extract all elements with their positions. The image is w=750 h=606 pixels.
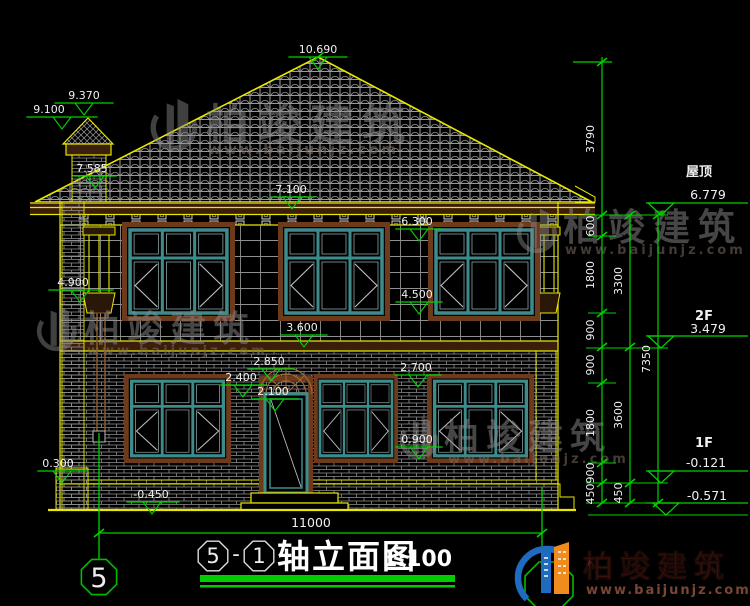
watermark-url: www.baijunjz.com [208, 142, 399, 158]
title-block: 5 - 1 轴立面图 1:100 [198, 537, 455, 588]
title-axis-end: 1 [252, 544, 265, 568]
overall-width-dimension: 11000 [94, 515, 547, 537]
level-value: 3.600 [286, 321, 318, 334]
dim-value: 450 [612, 483, 625, 504]
level-value: 2.700 [400, 361, 432, 374]
level-value: -0.121 [686, 455, 726, 470]
dim-value: 900 [584, 320, 597, 341]
watermark-url: www.baijunjz.com [565, 243, 746, 258]
title-axis-start: 5 [206, 544, 219, 568]
window-2f-left [125, 225, 233, 319]
level-label: 1F [695, 436, 713, 451]
level-value: 4.500 [401, 288, 433, 301]
dim-value: 1800 [584, 261, 597, 289]
level-value: 0.300 [42, 457, 74, 470]
level-value: 9.100 [33, 103, 65, 116]
dim-value: 3300 [612, 267, 625, 295]
level-value: 10.690 [299, 43, 338, 56]
level-value: 4.900 [57, 276, 89, 289]
chain-outer-label: 7350 [640, 345, 653, 373]
brand-logo: 柏竣建筑 www.baijunjz.com [518, 542, 750, 599]
dim-value: 3790 [584, 125, 597, 153]
level-value: 7.100 [275, 183, 307, 196]
level-value: 6.779 [690, 187, 726, 202]
window-1f-middle [316, 376, 396, 461]
level-value: 2.100 [257, 385, 289, 398]
dim-value: 600 [584, 216, 597, 237]
brand-url: www.baijunjz.com [586, 583, 750, 598]
level-value: 2.850 [253, 355, 285, 368]
chain-level-connectors [586, 215, 748, 515]
level-2f: 2F 3.479 [646, 309, 748, 348]
title-axis-separator: - [232, 542, 240, 566]
level-value: 9.370 [68, 89, 100, 102]
dim-value: 900 [584, 355, 597, 376]
level-value: 7.585 [76, 162, 108, 175]
dim-value: 450 [584, 484, 597, 505]
watermark-url: www.baijunjz.com [87, 344, 268, 359]
axis-number: 5 [90, 563, 107, 594]
chimney-cap-pyramid [63, 118, 113, 144]
title-underline-thick [200, 575, 455, 582]
elevation-drawing: 柏竣建筑 www.baijunjz.com 柏竣建筑 www.baijunjz.… [0, 0, 750, 606]
eave-fascia [30, 202, 595, 215]
dim-value: 11000 [291, 515, 331, 530]
drawing-scale: 1:100 [382, 547, 452, 572]
level-ground-right: -0.571 [646, 488, 748, 515]
dim-value: 1800 [584, 409, 597, 437]
level-value: -0.571 [687, 488, 727, 503]
level-value: -0.450 [133, 488, 168, 501]
window-1f-left [126, 376, 228, 461]
level-value: 2.400 [225, 371, 257, 384]
dim-value: 900 [584, 463, 597, 484]
level-value: 0.900 [401, 433, 433, 446]
brand-name: 柏竣建筑 [583, 550, 731, 585]
level-1f: 1F -0.121 [646, 436, 748, 483]
chimney-cap-band [66, 144, 111, 155]
level-value: 6.300 [401, 215, 433, 228]
pier-base [56, 468, 88, 510]
title-underline-thin [200, 585, 455, 588]
cad-elevation-screenshot: 柏竣建筑 www.baijunjz.com 柏竣建筑 www.baijunjz.… [0, 0, 750, 606]
dim-value: 3600 [612, 401, 625, 429]
level-label: 屋顶 [686, 165, 712, 180]
chain-mid-labels: 3300 3600 450 [612, 267, 625, 504]
window-2f-middle [281, 225, 388, 319]
level-value: 3.479 [690, 321, 726, 336]
